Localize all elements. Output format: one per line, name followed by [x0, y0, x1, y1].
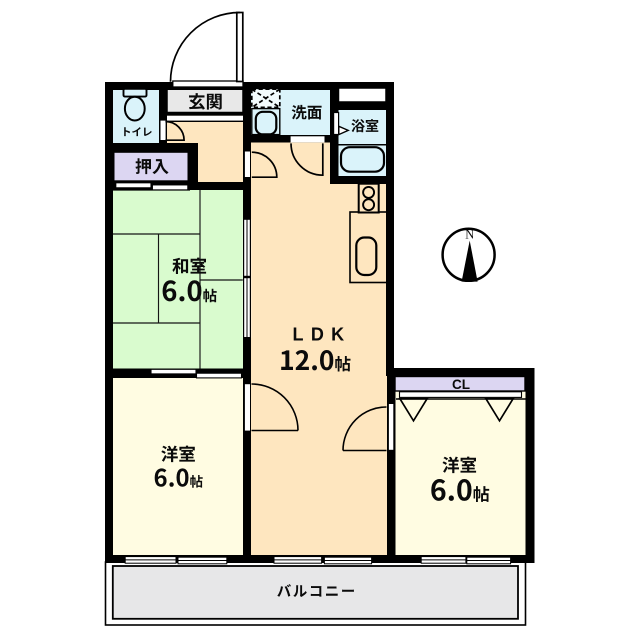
svg-text:CL: CL [452, 377, 470, 392]
svg-text:N: N [465, 228, 474, 242]
svg-text:LDK: LDK [293, 325, 352, 345]
